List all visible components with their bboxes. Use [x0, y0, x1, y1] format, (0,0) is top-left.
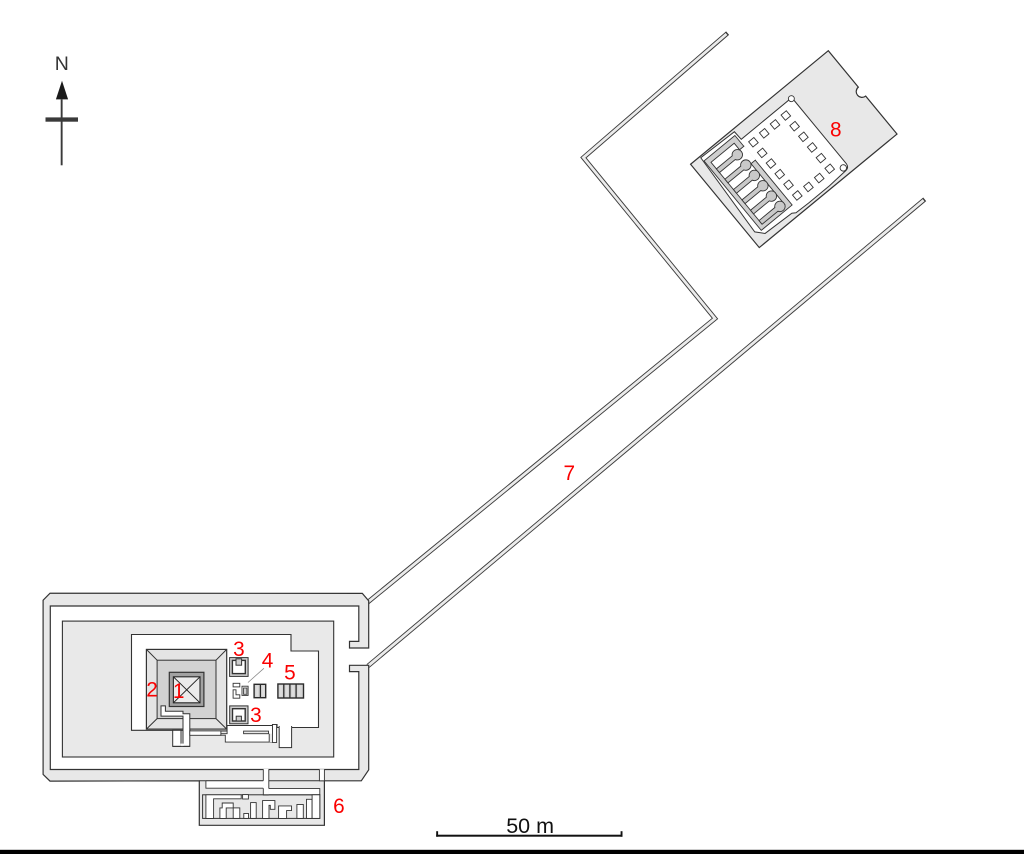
- svg-text:3: 3: [250, 704, 262, 727]
- svg-text:50 m: 50 m: [506, 814, 554, 838]
- svg-text:2: 2: [146, 679, 158, 702]
- svg-text:3: 3: [233, 638, 245, 661]
- svg-text:5: 5: [284, 662, 296, 685]
- svg-text:8: 8: [830, 119, 842, 142]
- svg-text:7: 7: [564, 462, 576, 485]
- svg-text:6: 6: [333, 795, 345, 818]
- svg-text:N: N: [55, 53, 69, 75]
- svg-text:1: 1: [173, 680, 185, 703]
